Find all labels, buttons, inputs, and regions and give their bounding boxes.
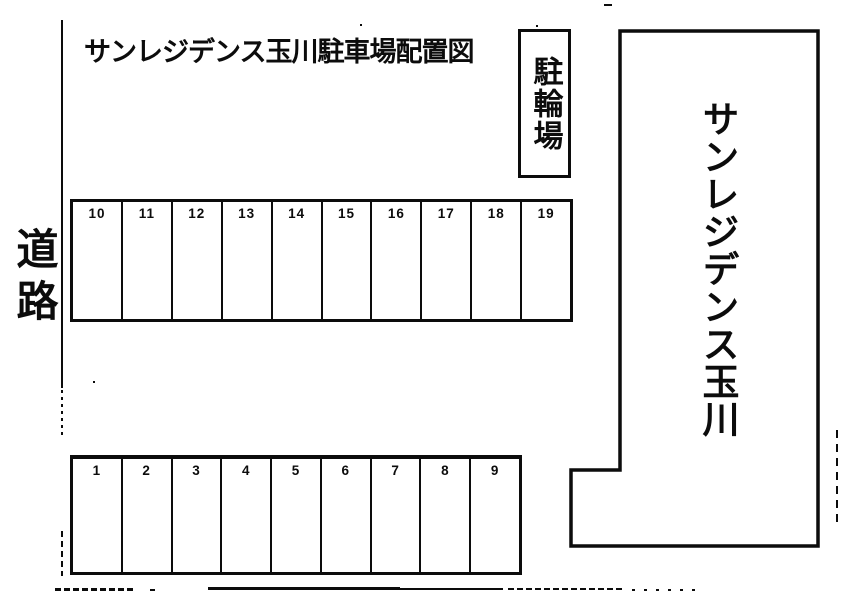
parking-space-4: 4 <box>222 459 272 572</box>
parking-space-17: 17 <box>422 202 472 319</box>
parking-space-number: 8 <box>421 463 469 478</box>
page-edge-segment <box>400 588 503 590</box>
parking-space-10: 10 <box>73 202 123 319</box>
parking-space-6: 6 <box>322 459 372 572</box>
parking-space-13: 13 <box>223 202 273 319</box>
page-edge-segment <box>208 587 400 590</box>
parking-space-12: 12 <box>173 202 223 319</box>
parking-space-number: 4 <box>222 463 270 478</box>
parking-space-number: 13 <box>223 206 271 221</box>
parking-space-number: 9 <box>471 463 519 478</box>
parking-space-number: 14 <box>273 206 321 221</box>
parking-space-number: 11 <box>123 206 171 221</box>
parking-space-3: 3 <box>173 459 223 572</box>
scan-speck <box>536 25 538 27</box>
parking-row-bottom: 1 2 3 4 5 6 7 8 9 <box>70 455 522 575</box>
page-edge-segment <box>150 589 155 591</box>
parking-space-14: 14 <box>273 202 323 319</box>
parking-space-19: 19 <box>522 202 570 319</box>
parking-space-number: 6 <box>322 463 370 478</box>
scan-speck <box>360 24 362 26</box>
parking-row-top: 10 11 12 13 14 15 16 17 18 19 <box>70 199 573 322</box>
page-edge-segment <box>632 589 702 591</box>
parking-space-2: 2 <box>123 459 173 572</box>
parking-space-number: 5 <box>272 463 320 478</box>
parking-space-number: 16 <box>372 206 420 221</box>
parking-space-16: 16 <box>372 202 422 319</box>
page-edge-dashes-right <box>836 430 838 522</box>
parking-space-5: 5 <box>272 459 322 572</box>
page-edge-segment <box>55 588 135 591</box>
building-shape <box>571 31 818 546</box>
parking-space-number: 18 <box>472 206 520 221</box>
scan-speck <box>604 4 612 6</box>
parking-space-11: 11 <box>123 202 173 319</box>
parking-space-number: 19 <box>522 206 570 221</box>
building-name-label: サンレジデンス玉川 <box>699 100 736 438</box>
parking-space-number: 1 <box>73 463 121 478</box>
parking-layout-diagram: サンレジデンス玉川駐車場配置図 道路 駐輪場 サンレジデンス玉川 10 11 1… <box>0 0 842 595</box>
parking-space-1: 1 <box>73 459 123 572</box>
parking-space-number: 17 <box>422 206 470 221</box>
parking-space-8: 8 <box>421 459 471 572</box>
scan-speck <box>93 381 95 383</box>
parking-space-number: 12 <box>173 206 221 221</box>
parking-space-15: 15 <box>323 202 373 319</box>
parking-space-number: 2 <box>123 463 171 478</box>
parking-space-9: 9 <box>471 459 519 572</box>
parking-space-number: 15 <box>323 206 371 221</box>
parking-space-18: 18 <box>472 202 522 319</box>
parking-space-7: 7 <box>372 459 422 572</box>
parking-space-number: 7 <box>372 463 420 478</box>
parking-space-number: 3 <box>173 463 221 478</box>
page-edge-segment <box>508 588 623 590</box>
parking-space-number: 10 <box>73 206 121 221</box>
